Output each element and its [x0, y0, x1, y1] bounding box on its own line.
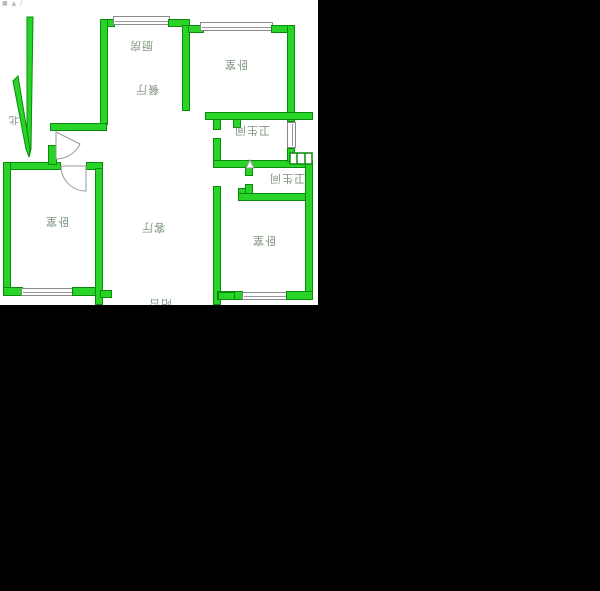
door-marker-triangle [246, 160, 254, 168]
room-label-balcony: 阳台 [148, 296, 172, 305]
screenshot-canvas: { "watermark": "■ ▲ /", "north": { "labe… [0, 0, 600, 591]
room-label-bath2: 卫生间 [269, 171, 305, 187]
room-label-bedroom-top: 卧室 [224, 57, 248, 73]
room-label-bedroom-right: 卧室 [252, 233, 276, 249]
room-label-bath1: 卫生间 [234, 123, 270, 139]
plan-details-layer [0, 0, 318, 305]
north-label: 北 [9, 114, 19, 129]
room-label-dining: 餐厅 [135, 82, 159, 98]
vent-box-symbol [290, 153, 312, 164]
room-label-living: 客厅 [141, 220, 165, 236]
north-arrow-icon [13, 17, 33, 157]
room-label-bedroom-left: 卧室 [45, 214, 69, 230]
door-swing-bedroom-left [61, 166, 86, 191]
floorplan-area: ■ ▲ / [0, 0, 318, 305]
room-label-kitchen: 厨房 [129, 38, 153, 54]
door-swing-entry [56, 132, 80, 159]
